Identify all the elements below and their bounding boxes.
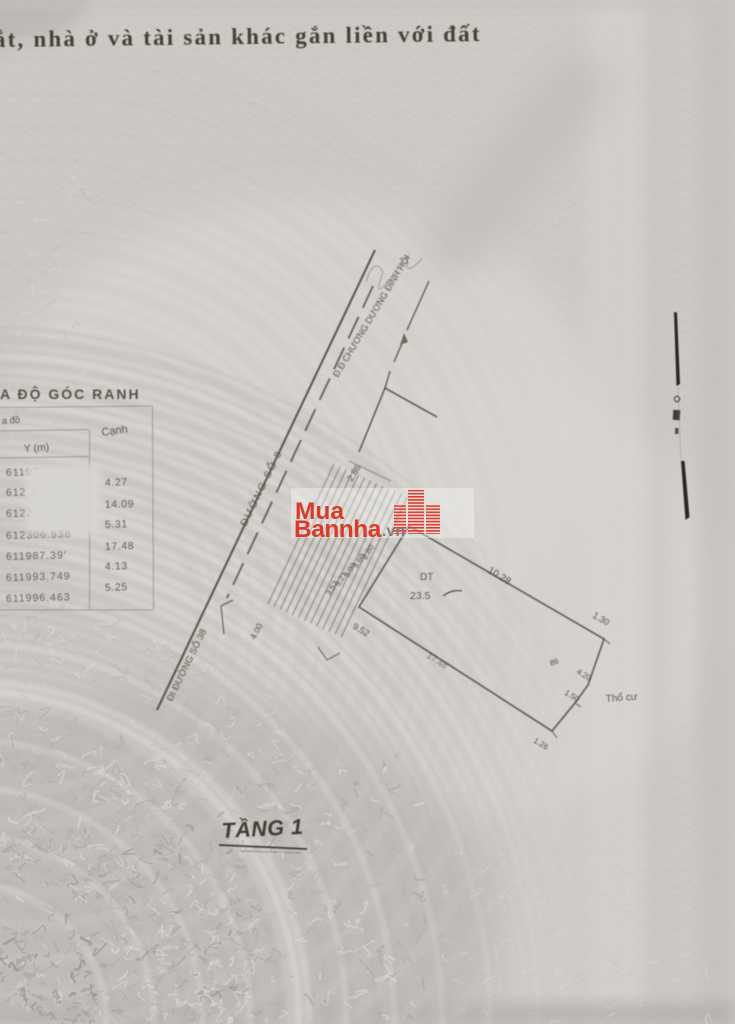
- svg-text:14.09: 14.09: [105, 498, 135, 511]
- svg-text:DT: DT: [420, 572, 433, 583]
- svg-text:Y (m): Y (m): [23, 441, 49, 455]
- svg-text:Bannha: Bannha: [294, 516, 382, 543]
- svg-text:611987.39': 611987.39': [6, 549, 67, 563]
- svg-text:23.5: 23.5: [410, 590, 431, 602]
- svg-text:4.13: 4.13: [105, 560, 128, 573]
- svg-text:5.31: 5.31: [105, 518, 128, 531]
- svg-text:Thổ cư: Thổ cư: [605, 691, 638, 705]
- svg-text:5.25: 5.25: [105, 581, 128, 594]
- svg-text:4.27: 4.27: [105, 476, 128, 489]
- svg-text:17.48: 17.48: [105, 540, 135, 553]
- svg-text:611996.463: 611996.463: [6, 591, 71, 605]
- svg-text:a đồ: a đồ: [1, 415, 20, 427]
- svg-text:.vn: .vn: [382, 523, 405, 540]
- svg-text:611993.749: 611993.749: [6, 570, 71, 584]
- svg-text:A ĐỘ GÓC RANH: A ĐỘ GÓC RANH: [0, 385, 141, 402]
- svg-text:TẦNG 1: TẦNG 1: [221, 814, 304, 843]
